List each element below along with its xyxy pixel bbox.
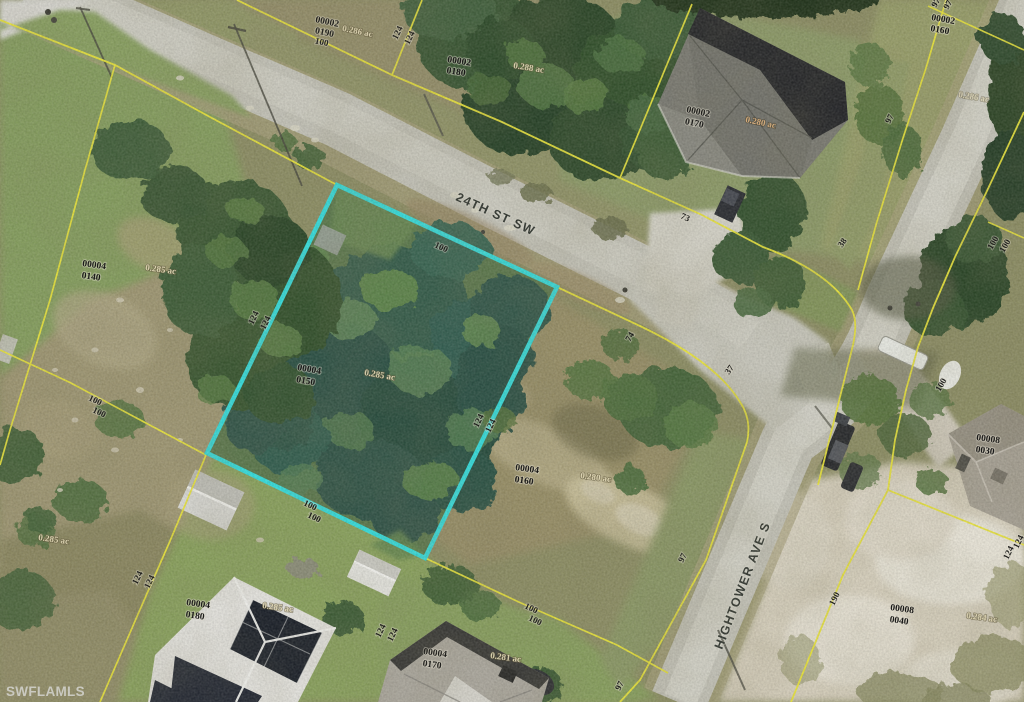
svg-text:SWFLAMLS: SWFLAMLS — [6, 684, 85, 699]
